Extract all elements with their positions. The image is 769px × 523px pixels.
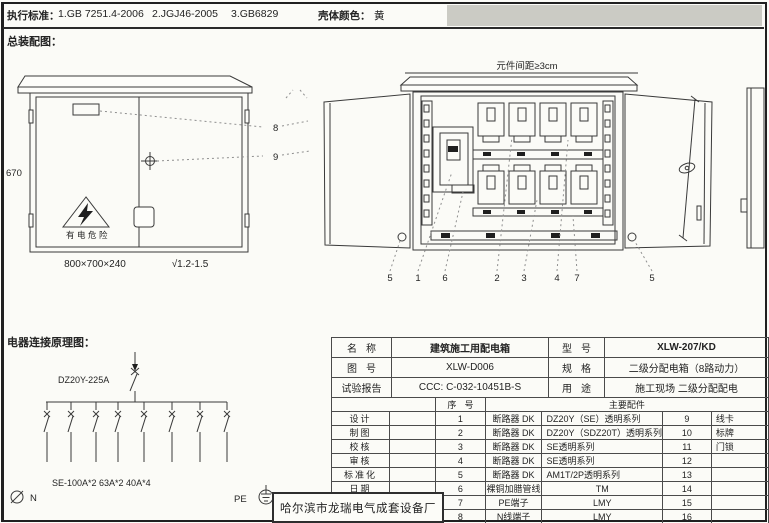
terminal-strip <box>473 208 603 216</box>
part-no2: 10 <box>663 426 712 440</box>
signature-cell <box>389 440 435 454</box>
wire-duct-middle <box>473 150 603 159</box>
part-no2: 13 <box>663 468 712 482</box>
neutral-symbol-icon <box>11 491 23 503</box>
callout-9: 9 <box>273 152 278 163</box>
part-no: 3 <box>436 440 485 454</box>
usage-value: 施工现场 二级分配配电 <box>605 378 769 398</box>
part-name: PE端子 <box>485 496 542 510</box>
callout-6: 6 <box>442 273 447 284</box>
callout-8: 8 <box>273 123 278 134</box>
part-no2: 11 <box>663 440 712 454</box>
spec-value: 二级分配电箱（8路动力） <box>605 358 769 378</box>
wiring-schematic: DZ20Y-225A SE-100A*2 63A*2 40A*4 N PE <box>11 352 273 505</box>
mounting-rail-right <box>603 101 613 225</box>
part-no: 4 <box>436 454 485 468</box>
part-name: 断路器 DK <box>485 412 542 426</box>
callout-5-right: 5 <box>649 273 654 284</box>
sign-label-design: 设计 <box>332 412 390 426</box>
manufacturer-name: 哈尔滨市龙瑞电气成套设备厂 <box>272 492 444 523</box>
callout-7: 7 <box>574 273 579 284</box>
main-parts-header: 主要配件 <box>485 398 768 412</box>
cable-clamp-rail <box>431 231 617 240</box>
callout-2: 2 <box>494 273 499 284</box>
part-name2: 门锁 <box>711 440 768 454</box>
part-spec: LMY <box>542 510 663 523</box>
part-spec: SE透明系列 <box>542 454 663 468</box>
model-label: 型号 <box>549 338 605 358</box>
part-name: 断路器 DK <box>485 454 542 468</box>
part-name2 <box>711 510 768 523</box>
part-no: 2 <box>436 426 485 440</box>
part-name: 断路器 DK <box>485 468 542 482</box>
part-name: 裸铜加腊管线 <box>485 482 542 496</box>
model-value: XLW-207/KD <box>605 338 769 358</box>
part-no: 1 <box>436 412 485 426</box>
breaker-row-top <box>478 103 597 142</box>
part-spec: SE透明系列 <box>542 440 663 454</box>
part-spec: DZ20Y（SE）透明系列 <box>542 412 663 426</box>
plate-thickness: √1.2-1.5 <box>172 258 209 270</box>
part-no: 5 <box>436 468 485 482</box>
part-name2 <box>711 454 768 468</box>
title-block-header: 名称 建筑施工用配电箱 型号 XLW-207/KD 图号 XLW-D006 规格… <box>331 337 769 398</box>
callout-3: 3 <box>521 273 526 284</box>
name-label: 名称 <box>332 338 392 358</box>
left-open-door <box>324 94 410 248</box>
meter-window <box>134 207 154 227</box>
branch-breakers <box>44 402 230 462</box>
sign-label-check: 校核 <box>332 440 390 454</box>
neutral-label: N <box>30 493 37 504</box>
part-name2: 标牌 <box>711 426 768 440</box>
part-name2 <box>711 496 768 510</box>
part-spec: AM1T/2P透明系列 <box>542 468 663 482</box>
callout-5-left: 5 <box>387 273 392 284</box>
signature-cell <box>389 454 435 468</box>
signature-cell <box>389 412 435 426</box>
drawing-no-value: XLW-D006 <box>392 358 549 378</box>
part-no2: 12 <box>663 454 712 468</box>
part-spec: TM <box>542 482 663 496</box>
electric-hazard-icon <box>63 197 109 227</box>
report-label: 试验报告 <box>332 378 392 398</box>
branch-spec-label: SE-100A*2 63A*2 40A*4 <box>52 478 151 488</box>
incoming-breaker <box>130 352 139 402</box>
part-no2: 15 <box>663 496 712 510</box>
sign-label-review: 审核 <box>332 454 390 468</box>
spec-label: 规格 <box>549 358 605 378</box>
pe-label: PE <box>234 494 247 505</box>
nameplate <box>73 104 99 115</box>
part-name: N线端子 <box>485 510 542 523</box>
signature-cell <box>389 426 435 440</box>
size-dimension: 800×700×240 <box>64 259 126 270</box>
part-name2: 线卡 <box>711 412 768 426</box>
name-value: 建筑施工用配电箱 <box>392 338 549 358</box>
part-name2 <box>711 482 768 496</box>
main-breaker-label: DZ20Y-225A <box>58 375 109 385</box>
drawing-sheet: 执行标准： 1.GB 7251.4-2006 2.JGJ46-2005 3.GB… <box>0 0 769 523</box>
seq-header: 序号 <box>436 398 485 412</box>
callout-1: 1 <box>415 273 420 284</box>
cabinet-open-view: 元件间距≥3cm <box>324 60 764 284</box>
height-dimension: 670 <box>6 168 22 179</box>
part-name2 <box>711 468 768 482</box>
hazard-text: 有电危险 <box>66 230 110 240</box>
breaker-row-bottom <box>478 165 597 204</box>
part-spec: LMY <box>542 496 663 510</box>
part-name: 断路器 DK <box>485 426 542 440</box>
cabinet-front-view: 有电危险 670 800×700×240 √1.2-1.5 8 9 <box>6 76 310 270</box>
main-breaker <box>433 127 474 193</box>
report-value: CCC: C-032-10451B-S <box>392 378 549 398</box>
earth-symbol-icon <box>259 485 273 504</box>
side-panel-view <box>741 88 764 248</box>
usage-label: 用途 <box>549 378 605 398</box>
door-latch-icon <box>678 161 696 175</box>
mounting-rail-left <box>422 101 432 225</box>
part-name: 断路器 DK <box>485 440 542 454</box>
sign-label-standard: 标准化 <box>332 468 390 482</box>
part-no2: 16 <box>663 510 712 523</box>
part-no2: 9 <box>663 412 712 426</box>
part-no2: 14 <box>663 482 712 496</box>
empty-cell <box>332 398 436 412</box>
right-open-door <box>625 94 712 248</box>
part-spec: DZ20Y（SDZ20T）透明系列 <box>542 426 663 440</box>
callout-4: 4 <box>554 273 559 284</box>
signature-cell <box>389 468 435 482</box>
door-lock-icon <box>141 152 159 170</box>
sign-label-draft: 制图 <box>332 426 390 440</box>
component-spacing-note: 元件间距≥3cm <box>496 60 557 72</box>
drawing-no-label: 图号 <box>332 358 392 378</box>
